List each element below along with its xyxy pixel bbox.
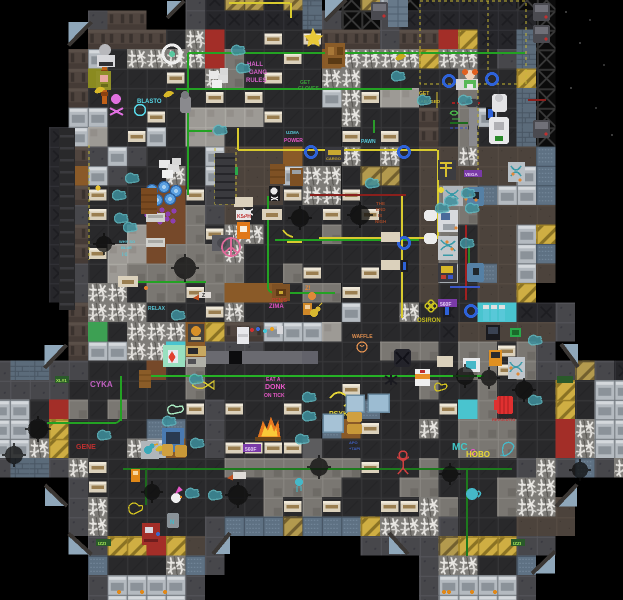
svg-text:EAT A: EAT A xyxy=(266,377,281,383)
svg-text:ZIMA: ZIMA xyxy=(269,304,284,310)
svg-text:GANG: GANG xyxy=(249,70,267,76)
svg-text:PAWN: PAWN xyxy=(361,139,376,145)
svg-text:[:(]: [:(] xyxy=(122,251,128,256)
svg-text:REVOLUTIO: REVOLUTIO xyxy=(492,417,515,422)
svg-text:IZZI: IZZI xyxy=(98,541,106,546)
svg-text:IZZI: IZZI xyxy=(513,541,521,546)
svg-text:GENE: GENE xyxy=(76,444,96,451)
svg-text:+TAPI: +TAPI xyxy=(349,446,360,451)
svg-text:WAFFLE: WAFFLE xyxy=(352,334,373,340)
svg-text:VEGA: VEGA xyxy=(465,172,479,177)
svg-text:NIGH: NIGH xyxy=(375,219,386,224)
svg-text:OSIRON: OSIRON xyxy=(417,318,441,324)
svg-text:HOBO: HOBO xyxy=(466,450,490,459)
svg-text:CARGO: CARGO xyxy=(326,156,341,161)
svg-text:N: N xyxy=(170,520,174,526)
svg-text:GLOVES: GLOVES xyxy=(298,86,320,92)
svg-text:CYKA: CYKA xyxy=(90,380,113,389)
svg-text:Z: Z xyxy=(202,293,205,299)
svg-text:560F: 560F xyxy=(440,302,451,308)
svg-text:PENIS: PENIS xyxy=(272,298,288,304)
svg-text:IS: IS xyxy=(378,213,382,218)
svg-text:Z!: Z! xyxy=(305,286,311,292)
svg-text:END: END xyxy=(376,207,386,212)
svg-text:560F: 560F xyxy=(245,447,256,453)
svg-text:XL#1: XL#1 xyxy=(56,378,67,383)
svg-text:RELAX: RELAX xyxy=(148,306,166,312)
svg-text:POWER: POWER xyxy=(284,138,303,144)
svg-text:WHY SO: WHY SO xyxy=(119,239,135,244)
svg-text:DONK: DONK xyxy=(265,384,286,391)
svg-text:APO: APO xyxy=(349,440,358,445)
svg-text:UZMA: UZMA xyxy=(286,130,300,135)
svg-text:ON TICK: ON TICK xyxy=(264,393,285,399)
svg-text:BLUE: BLUE xyxy=(121,245,132,250)
svg-text:THE: THE xyxy=(376,201,385,206)
svg-text:RULES: RULES xyxy=(246,78,266,84)
